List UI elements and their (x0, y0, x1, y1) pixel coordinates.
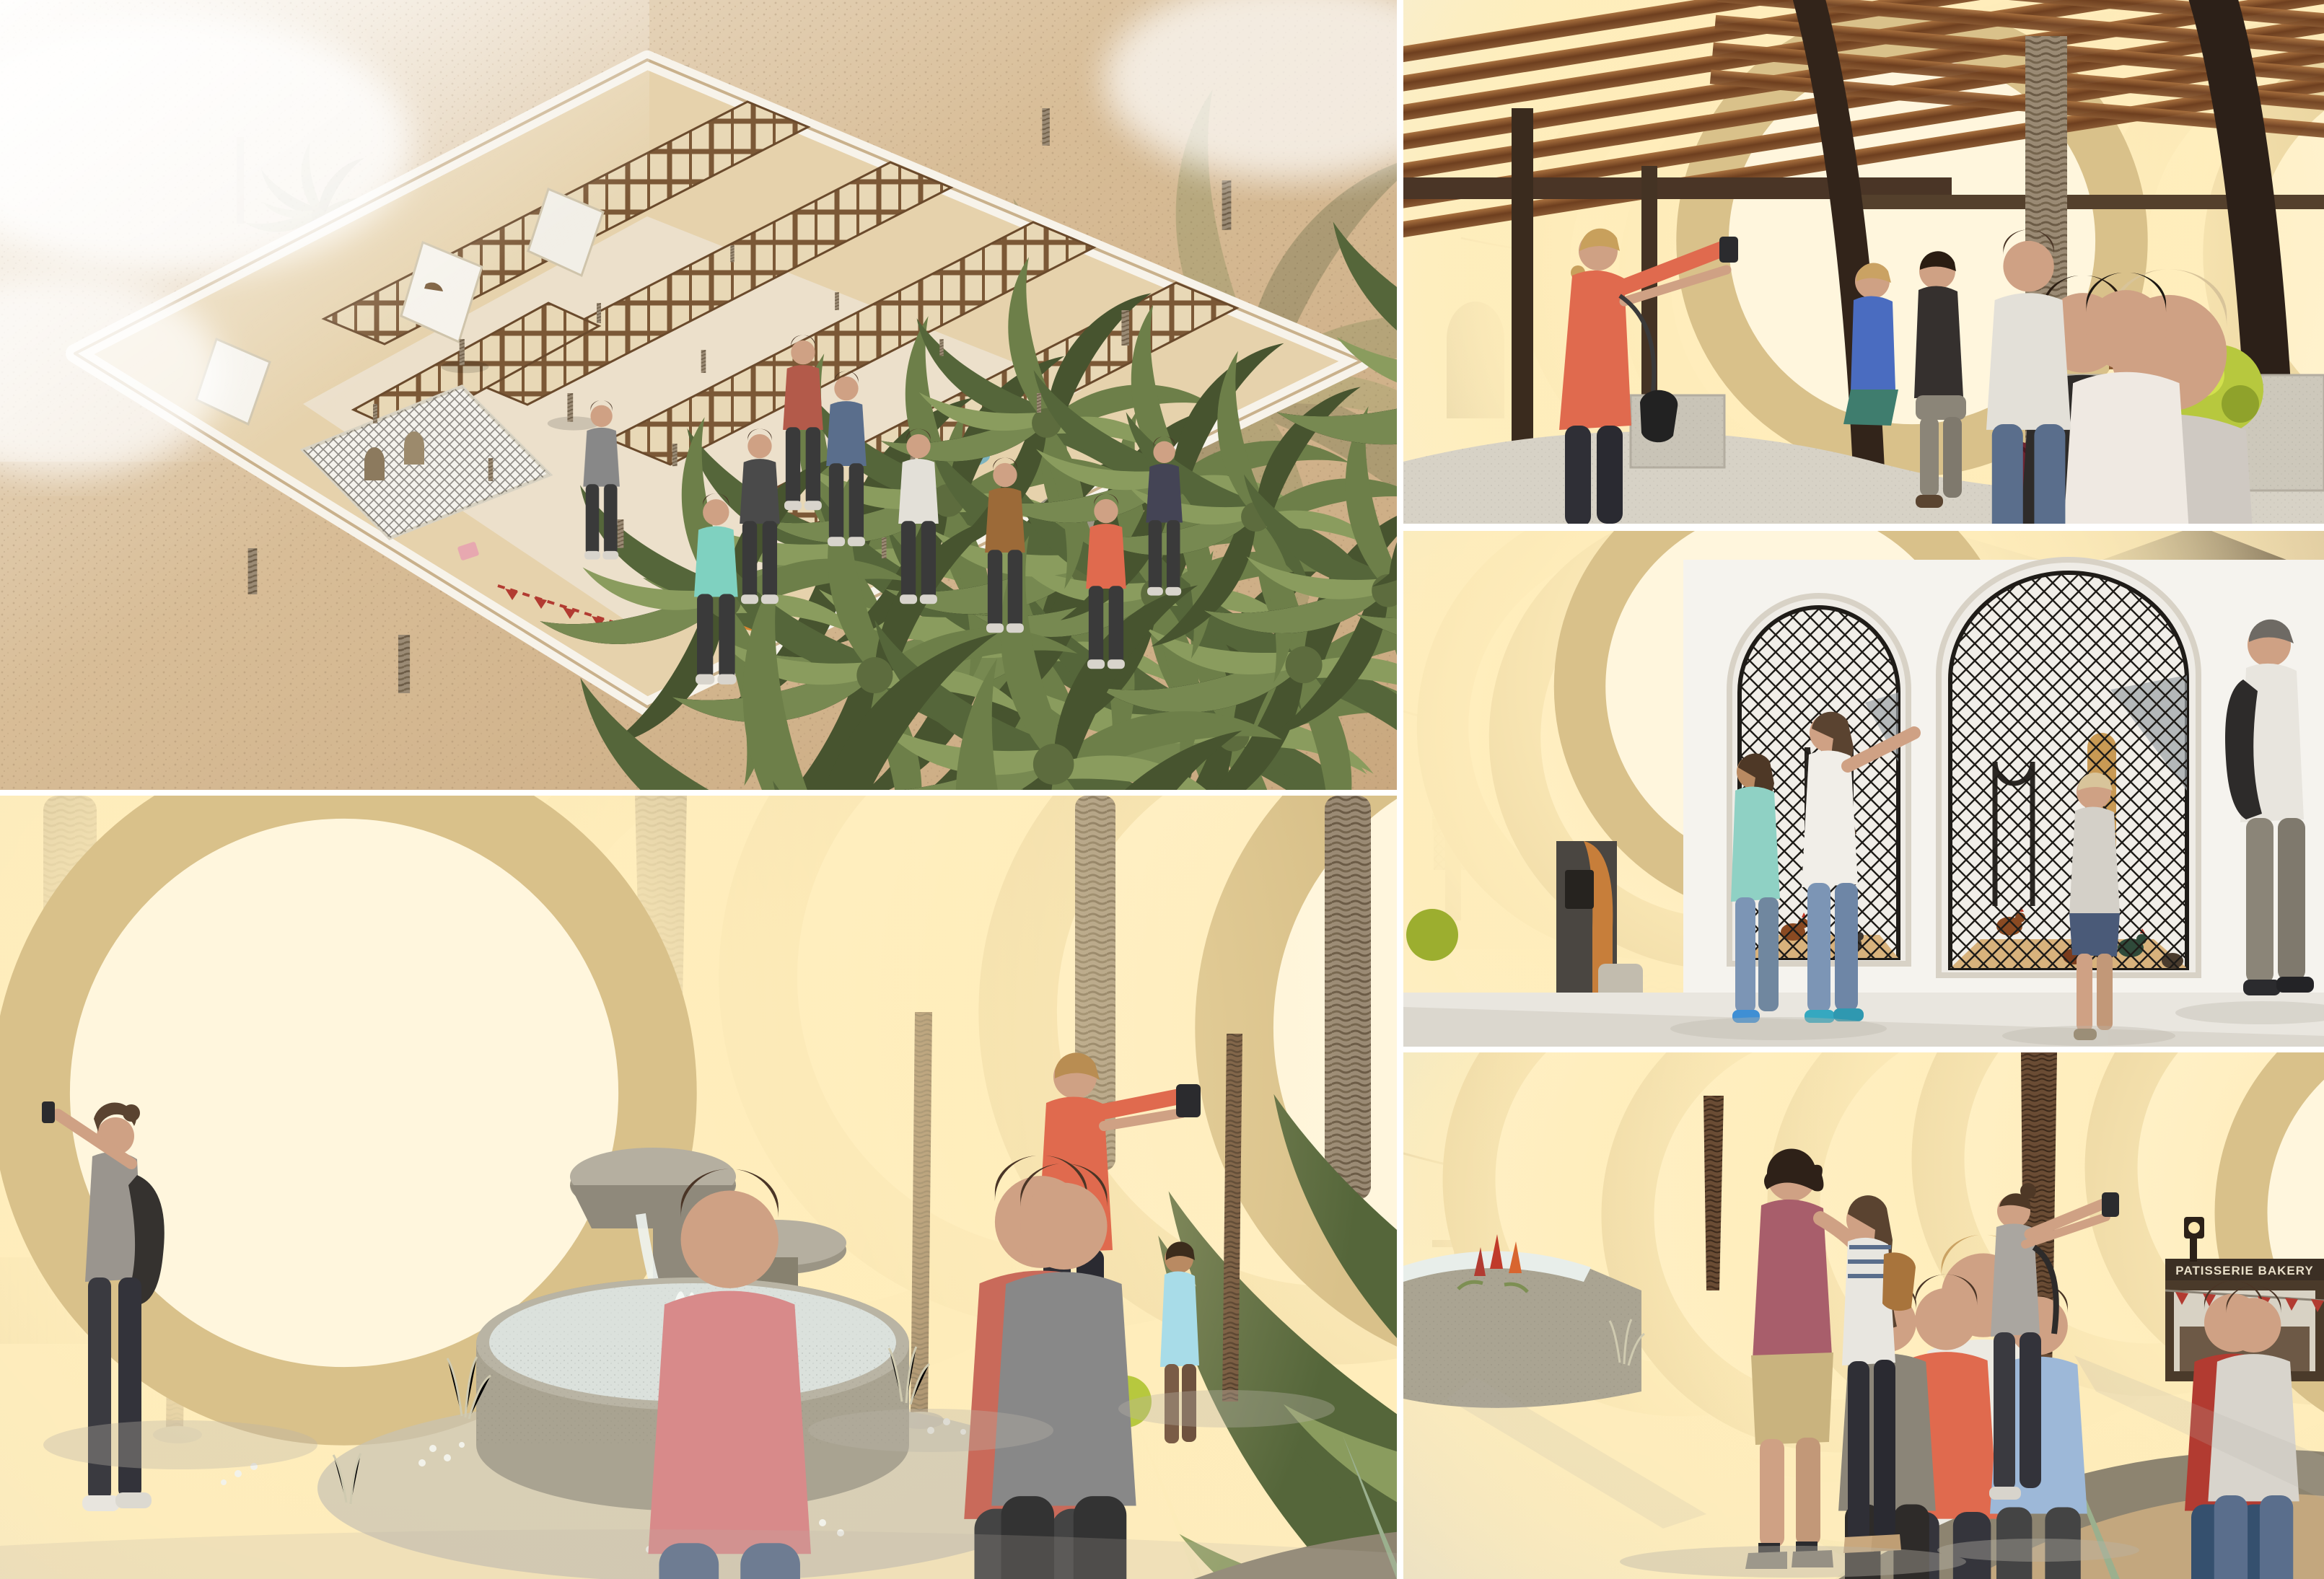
camera-phone (1176, 1084, 1201, 1117)
panel-aerial-overview (0, 0, 1397, 790)
arched-mesh-window (1939, 560, 2198, 975)
panel-chicken-coop (1403, 531, 2324, 1047)
patisserie-sign-text: PATISSERIE BAKERY (2175, 1264, 2313, 1277)
khaki-shorts (1751, 1353, 1833, 1445)
render-collage: FRESH EGGS (0, 0, 2324, 1579)
coop-facade (1683, 560, 2324, 1007)
black-bag (1640, 390, 1678, 442)
panel-patisserie-plaza: PATISSERIE BAKERY (1403, 1052, 2324, 1579)
panel-pergola-lounge: H 3 N (1403, 0, 2324, 524)
denim-shorts (2069, 913, 2120, 956)
phone (2102, 1192, 2119, 1217)
phone (42, 1101, 55, 1123)
panel-fountain-plaza: FRESH EGGS (0, 796, 1397, 1579)
shoulder-bag (1882, 1252, 1916, 1311)
bush (1406, 909, 1458, 961)
